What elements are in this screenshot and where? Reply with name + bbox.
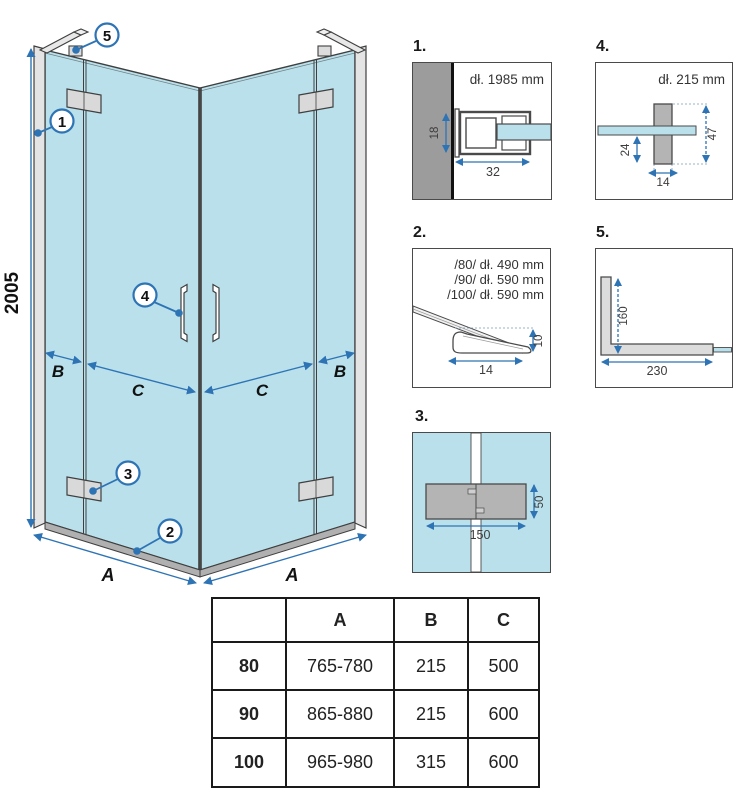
height-dim-label: 2005 <box>2 271 23 314</box>
detail-2-line-100: /100/ dł. 590 mm <box>447 287 544 302</box>
row-90-c: 600 <box>468 690 539 738</box>
table-row: 100 965-980 315 600 <box>212 738 539 787</box>
header-a: A <box>286 598 394 642</box>
callout-5-number: 5 <box>103 28 111 45</box>
detail-5-label: 5. <box>596 224 609 242</box>
dim-230-label: 230 <box>647 364 668 378</box>
detail-4-drawing: dł. 215 mm 47 24 14 <box>596 63 732 199</box>
header-size <box>212 598 286 642</box>
detail-2-line-80: /80/ dł. 490 mm <box>454 257 544 272</box>
row-100-b: 315 <box>394 738 468 787</box>
b-left-label: B <box>52 362 64 381</box>
support-bracket-right <box>318 46 331 56</box>
callout-5: 5 <box>72 24 118 54</box>
table-header-row: A B C <box>212 598 539 642</box>
dim-32-label: 32 <box>486 165 500 179</box>
detail-1-title: dł. 1985 mm <box>470 72 544 87</box>
detail-3-label: 3. <box>415 408 428 426</box>
c-right-label: C <box>256 381 269 400</box>
detail-2-label: 2. <box>413 224 426 242</box>
row-90-a: 865-880 <box>286 690 394 738</box>
row-90-size: 90 <box>212 690 286 738</box>
detail-3-box: 50 150 <box>412 432 551 573</box>
a-left-label: A <box>101 565 115 585</box>
detail-5-dim-160: 160 <box>618 279 630 353</box>
wall-profile-right <box>355 46 366 528</box>
table-row: 90 865-880 215 600 <box>212 690 539 738</box>
detail-4-dim-24: 24 <box>620 137 637 162</box>
c-left-label: C <box>132 381 145 400</box>
detail-2-drawing: /80/ dł. 490 mm /90/ dł. 590 mm /100/ dł… <box>413 249 550 387</box>
detail-3-drawing: 50 150 <box>413 433 550 572</box>
dim-24-label: 24 <box>620 143 632 156</box>
hinge-notch-bottom <box>476 508 484 513</box>
size-table: A B C 80 765-780 215 500 90 865-880 215 … <box>211 597 540 788</box>
dim-47-label: 47 <box>707 128 719 141</box>
main-isometric-diagram: 2005 B C C B A A <box>0 0 405 620</box>
callout-1-number: 1 <box>58 114 66 131</box>
callout-2-number: 2 <box>166 524 174 541</box>
detail-5-box: 160 230 <box>595 248 733 388</box>
detail-4-dim-47: 47 <box>706 106 719 162</box>
row-100-size: 100 <box>212 738 286 787</box>
detail-4-dim-14: 14 <box>649 173 677 189</box>
shower-enclosure-technical-drawing: 2005 B C C B A A <box>0 0 751 800</box>
callout-3-number: 3 <box>124 466 132 483</box>
detail-1-drawing: dł. 1985 mm 18 32 <box>413 63 551 199</box>
detail-2-box: /80/ dł. 490 mm /90/ dł. 590 mm /100/ dł… <box>412 248 551 388</box>
detail-2-dim-14: 14 <box>449 361 522 377</box>
glass-strip-section <box>714 348 732 353</box>
dim-14-label: 14 <box>656 175 670 189</box>
row-80-c: 500 <box>468 642 539 690</box>
dim-18-label: 18 <box>429 127 441 140</box>
row-80-size: 80 <box>212 642 286 690</box>
row-100-a: 965-980 <box>286 738 394 787</box>
dim-10-label: 10 <box>533 335 545 348</box>
detail-4-title: dł. 215 mm <box>658 72 725 87</box>
dim-160-label: 160 <box>618 306 630 325</box>
detail-1-label: 1. <box>413 38 426 56</box>
detail-5-drawing: 160 230 <box>596 249 732 387</box>
glass-edge-section <box>497 124 551 140</box>
dim-150-label: 150 <box>470 528 491 542</box>
row-100-c: 600 <box>468 738 539 787</box>
row-90-b: 215 <box>394 690 468 738</box>
dimension-height: 2005 <box>2 49 31 527</box>
detail-4-box: dł. 215 mm 47 24 14 <box>595 62 733 200</box>
table-row: 80 765-780 215 500 <box>212 642 539 690</box>
detail-4-label: 4. <box>596 38 609 56</box>
hinge-notch-top <box>468 489 476 494</box>
row-80-b: 215 <box>394 642 468 690</box>
detail-1-box: dł. 1985 mm 18 32 <box>412 62 552 200</box>
header-c: C <box>468 598 539 642</box>
b-right-label: B <box>334 362 346 381</box>
callout-4-number: 4 <box>141 288 150 305</box>
header-b: B <box>394 598 468 642</box>
glass-strip-section <box>598 126 696 135</box>
dim-14-label: 14 <box>479 363 493 377</box>
detail-5-dim-230: 230 <box>602 362 712 378</box>
wall-profile-left <box>34 46 45 528</box>
detail-1-dim-32: 32 <box>456 162 529 179</box>
a-right-label: A <box>285 565 299 585</box>
dim-50-label: 50 <box>534 496 546 509</box>
detail-2-line-90: /90/ dł. 590 mm <box>454 272 544 287</box>
detail-2-dim-10: 10 <box>533 330 545 351</box>
row-80-a: 765-780 <box>286 642 394 690</box>
